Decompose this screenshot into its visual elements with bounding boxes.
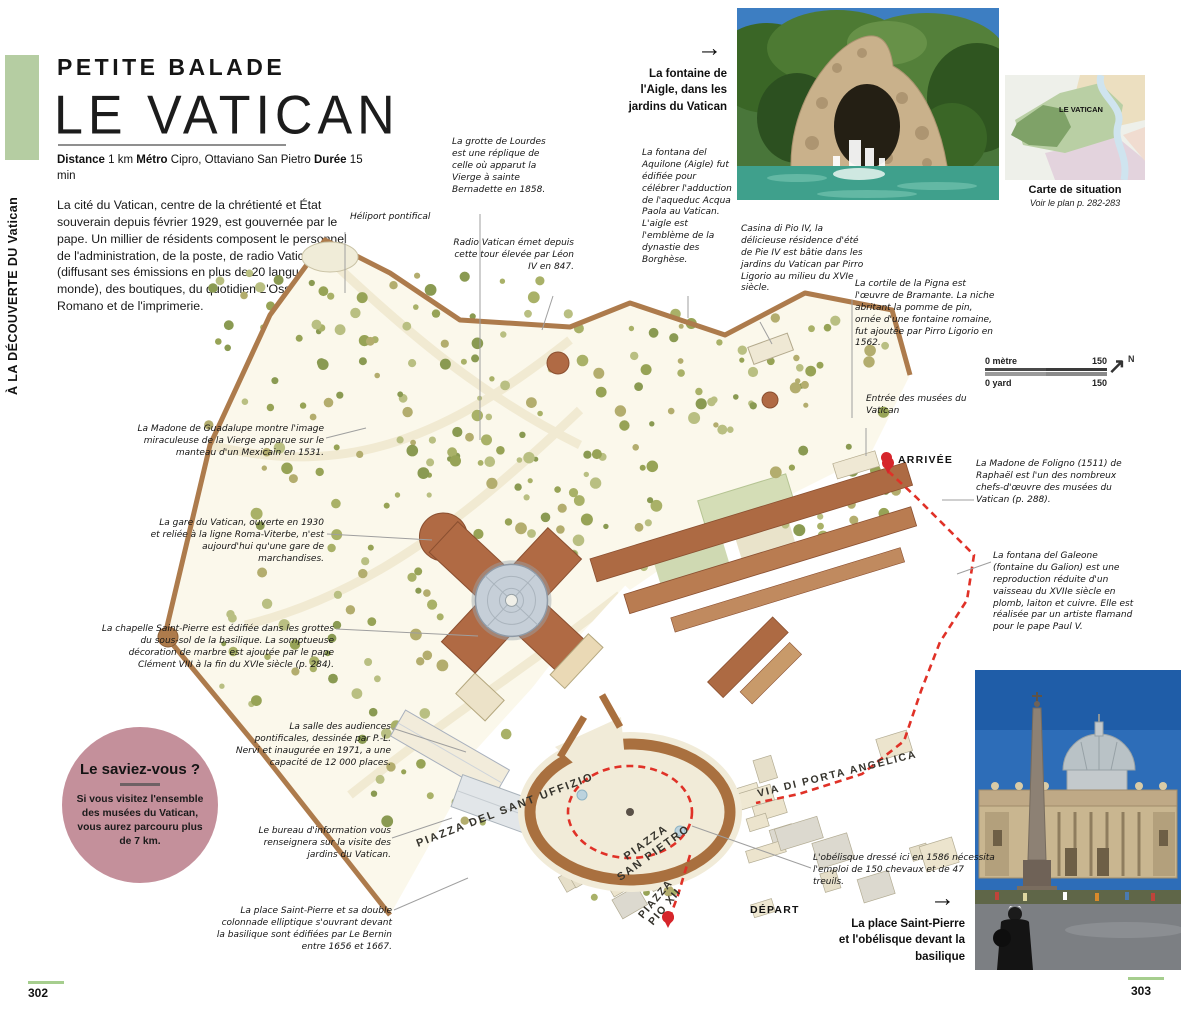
depart-marker: DÉPART bbox=[750, 904, 800, 916]
situation-map-label: LE VATICAN bbox=[1059, 105, 1103, 114]
scale-metre-label: 0 mètre bbox=[985, 356, 1017, 366]
scale-bar: 0 mètre 150 0 yard 150 bbox=[985, 356, 1107, 388]
map-annotation-colonnade-bernin: La place Saint-Pierre et sa double colon… bbox=[212, 906, 392, 954]
map-annotation-chapelle-saint-pierre: La chapelle Saint-Pierre est édifiée dan… bbox=[98, 624, 334, 672]
map-annotation-madone-foligno: La Madone de Foligno (1511) de Raphaël e… bbox=[976, 459, 1144, 507]
map-annotation-fontana-galeone: La fontana del Galeone (fontaine du Gali… bbox=[993, 551, 1141, 634]
scale-yard-value: 150 bbox=[1092, 378, 1107, 388]
arrow-icon: → bbox=[930, 886, 955, 911]
meta-distance-label: Distance bbox=[57, 154, 105, 166]
did-you-know-title: Le saviez-vous ? bbox=[80, 761, 200, 778]
map-annotation-madone-guadalupe: La Madone de Guadalupe montre l'image mi… bbox=[128, 424, 324, 460]
crowd-barrier bbox=[975, 890, 1181, 906]
map-annotation-casina-pio: Casina di Pio IV, la délicieuse résidenc… bbox=[741, 224, 865, 295]
page-title: LE VATICAN bbox=[54, 84, 400, 147]
page-number-right: 303 bbox=[1131, 984, 1151, 998]
meta-duration-label: Durée bbox=[314, 154, 347, 166]
map-annotation-grotte-lourdes: La grotte de Lourdes est une réplique de… bbox=[452, 137, 554, 196]
basilica-photo-caption: La place Saint-Pierre et l'obélisque dev… bbox=[838, 916, 965, 965]
north-indicator: ↗ N bbox=[1108, 356, 1126, 378]
chapter-vertical-label: À LA DÉCOUVERTE DU Vatican bbox=[6, 165, 20, 395]
radio-tower bbox=[547, 352, 569, 374]
walk-meta: Distance 1 km Métro Cipro, Ottaviano San… bbox=[57, 153, 365, 184]
map-annotation-entree-musees: Entrée des musées du Vatican bbox=[866, 394, 976, 418]
section-kicker: PETITE BALADE bbox=[57, 54, 285, 81]
guidebook-spread: À LA DÉCOUVERTE DU Vatican PETITE BALADE… bbox=[0, 0, 1181, 1025]
meta-metro-value: Cipro, Ottaviano San Pietro bbox=[171, 154, 311, 166]
scale-bar-yards bbox=[985, 372, 1107, 376]
did-you-know-divider bbox=[120, 783, 160, 786]
map-annotation-gare-vatican: La gare du Vatican, ouverte en 1930 et r… bbox=[150, 518, 324, 566]
map-annotation-radio-vatican: Radio Vatican émet depuis cette tour éle… bbox=[452, 238, 574, 274]
facade bbox=[979, 782, 1177, 878]
chapter-color-block bbox=[5, 55, 39, 160]
garden-tower bbox=[762, 392, 778, 408]
heliport-pad bbox=[302, 242, 358, 272]
map-annotation-fontana-aquilone: La fontana del Aquilone (Aigle) fut édif… bbox=[642, 148, 735, 267]
map-annotation-heliport: Héliport pontifical bbox=[350, 212, 460, 224]
fountain-photo-caption: La fontaine de l'Aigle, dans les jardins… bbox=[615, 66, 727, 115]
scale-yard-label: 0 yard bbox=[985, 378, 1012, 388]
arrivee-marker: ARRIVÉE bbox=[898, 454, 953, 466]
north-arrow-icon: ↗ bbox=[1108, 355, 1126, 378]
meta-distance-value: 1 km bbox=[108, 154, 133, 166]
fountain-photo bbox=[737, 8, 999, 200]
pavement-light bbox=[1065, 922, 1181, 938]
did-you-know-body: Si vous visitez l'ensemble des musées du… bbox=[62, 793, 218, 849]
map-annotation-cortile-pigna: La cortile de la Pigna est l'œuvre de Br… bbox=[855, 279, 995, 350]
basilica-photo bbox=[975, 670, 1181, 970]
page-number-rule-left bbox=[28, 981, 64, 984]
title-divider bbox=[58, 144, 286, 146]
meta-metro-label: Métro bbox=[136, 154, 167, 166]
situation-map-caption: Carte de situation bbox=[1005, 184, 1145, 196]
label-via-angelica: VIA DI PORTA ANGELICA bbox=[756, 748, 918, 799]
situation-map-subcaption: Voir le plan p. 282-283 bbox=[1005, 198, 1145, 208]
scale-metre-value: 150 bbox=[1092, 356, 1107, 366]
map-annotation-obelisque: L'obélisque dressé ici en 1586 nécessita… bbox=[813, 853, 995, 889]
map-annotation-bureau-information: Le bureau d'information vous renseignera… bbox=[233, 826, 391, 862]
situation-map: LE VATICAN bbox=[1005, 75, 1145, 180]
map-annotation-salle-audiences: La salle des audiences pontificales, des… bbox=[235, 722, 391, 770]
foam bbox=[833, 168, 885, 180]
north-label: N bbox=[1128, 354, 1135, 364]
scale-bar-metres bbox=[985, 368, 1107, 371]
did-you-know-badge: Le saviez-vous ? Si vous visitez l'ensem… bbox=[62, 727, 218, 883]
page-number-left: 302 bbox=[28, 986, 48, 1000]
arrow-icon: → bbox=[697, 36, 722, 61]
page-number-rule-right bbox=[1128, 977, 1164, 980]
